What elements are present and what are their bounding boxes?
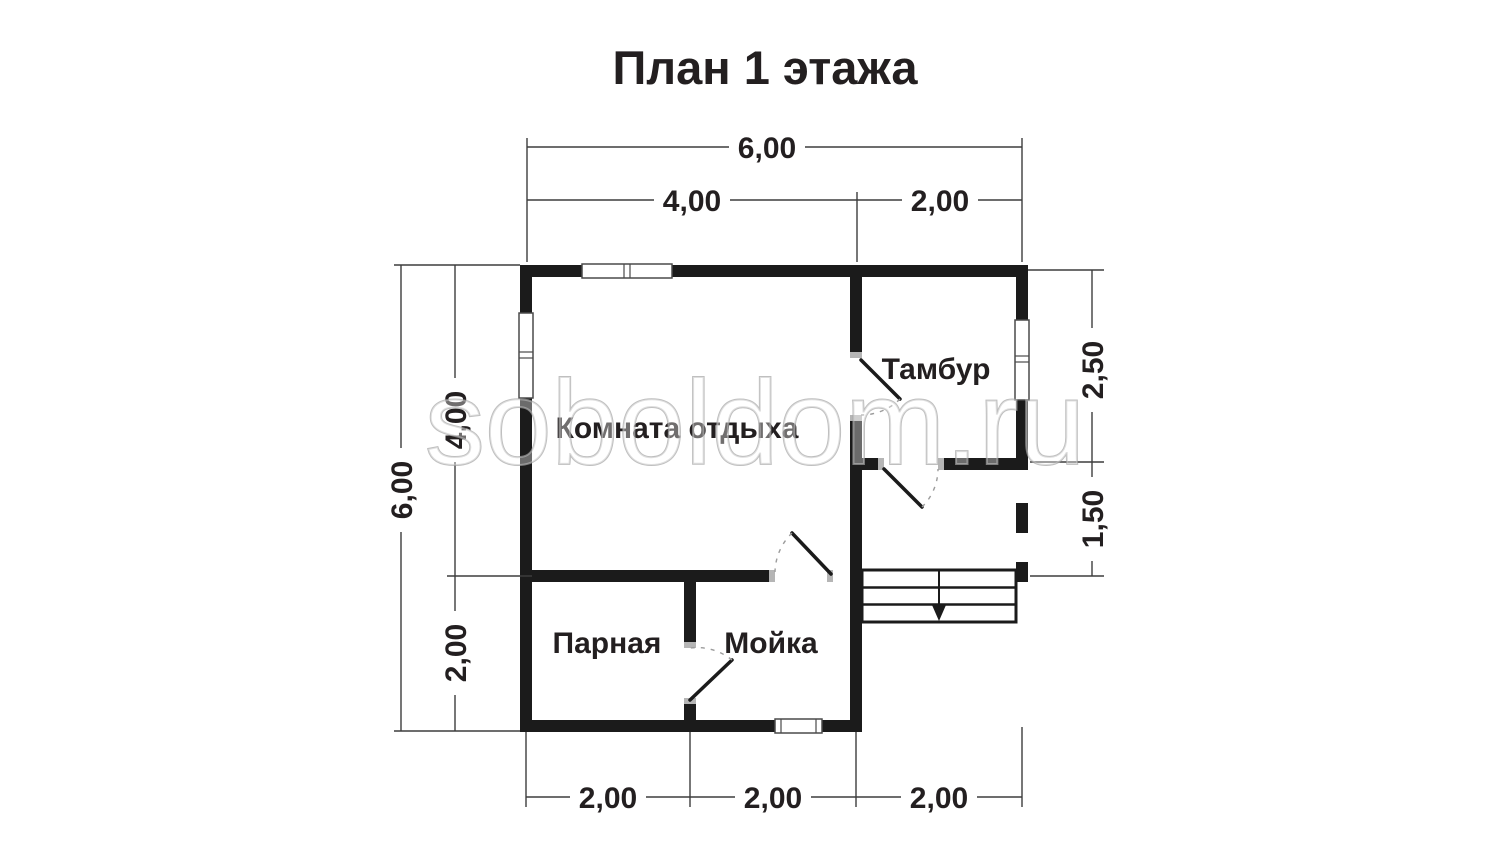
- wall-segment-room-divider-upper: [684, 582, 696, 642]
- wall-segment-room-divider-lower: [684, 704, 696, 720]
- room-label-steam-room: Парная: [553, 627, 662, 660]
- floor-plan-drawing: План 1 этажа: [0, 0, 1510, 850]
- dim-label-top-right: 2,00: [911, 185, 969, 218]
- wall-segment-interior-horizontal: [532, 570, 775, 582]
- watermark-text: soboldom.ru: [425, 356, 1085, 490]
- porch-post-upper: [1016, 503, 1028, 533]
- windows: [519, 264, 1029, 733]
- door-rest-room-to-wash-room: [775, 533, 831, 574]
- door-leaf: [792, 533, 831, 574]
- room-label-wash-room: Мойка: [724, 627, 818, 660]
- dim-label-top-left: 4,00: [663, 185, 721, 218]
- door-jamb: [769, 570, 775, 582]
- dim-label-bottom-left: 2,00: [579, 782, 637, 815]
- dim-label-top-total: 6,00: [738, 132, 796, 165]
- dim-label-bottom-right: 2,00: [910, 782, 968, 815]
- wall-segment-interior-vertical-upper: [850, 265, 862, 352]
- dim-label-left-total: 6,00: [386, 461, 419, 519]
- window-symbol-bottom: [775, 719, 822, 733]
- stairs: [862, 570, 1016, 622]
- dim-label-left-lower: 2,00: [440, 624, 473, 682]
- walls: [520, 265, 1028, 732]
- dim-label-bottom-middle: 2,00: [744, 782, 802, 815]
- door-swing-arc: [775, 533, 792, 572]
- porch-post-lower: [1016, 562, 1028, 582]
- door-leaf: [690, 660, 732, 700]
- floor-plan-page: План 1 этажа: [0, 0, 1510, 850]
- page-title: План 1 этажа: [613, 41, 919, 94]
- dim-label-right-lower: 1,50: [1077, 490, 1110, 548]
- window-symbol-top: [582, 264, 672, 278]
